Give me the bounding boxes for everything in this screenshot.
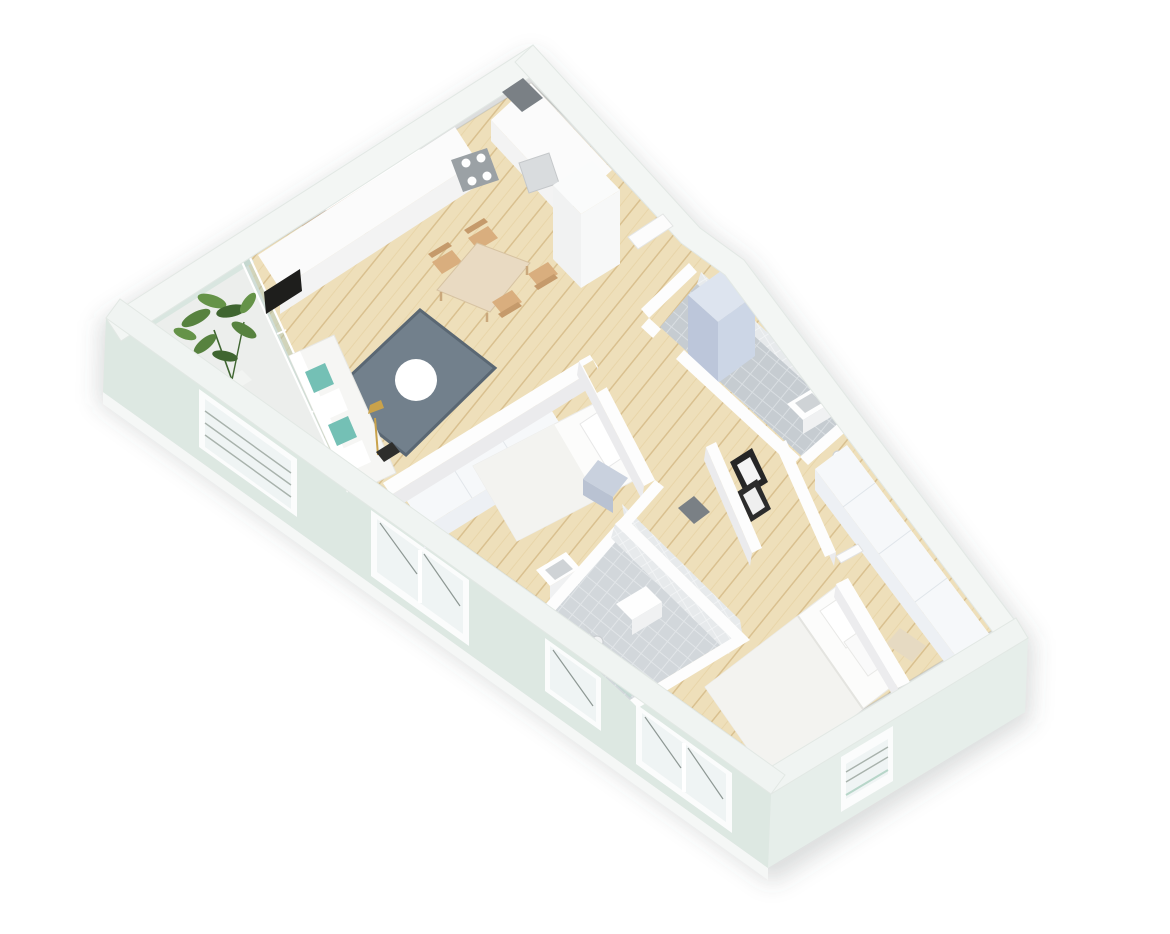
burner bbox=[468, 177, 477, 186]
burner bbox=[477, 154, 486, 163]
burner bbox=[462, 159, 471, 168]
burner bbox=[483, 172, 492, 181]
floor-plan-svg bbox=[0, 0, 1170, 934]
floor-plan-stage bbox=[0, 0, 1170, 934]
round-coffee-table bbox=[395, 359, 437, 401]
tall-cabinet-fridge bbox=[553, 161, 620, 288]
